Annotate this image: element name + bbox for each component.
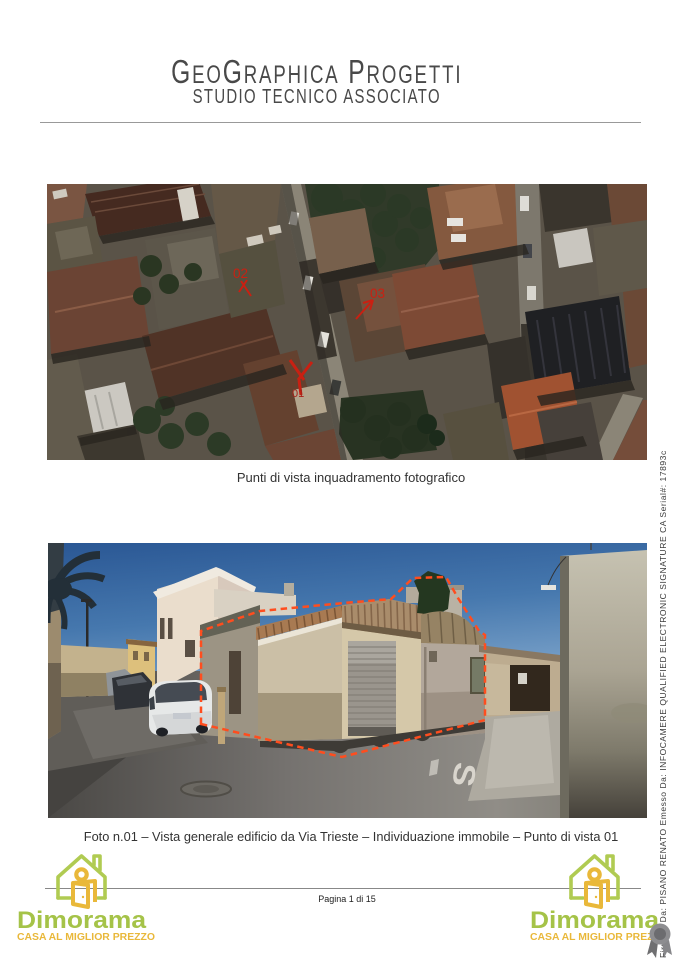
svg-text:Dimorama: Dimorama bbox=[17, 907, 147, 934]
svg-text:02: 02 bbox=[233, 266, 248, 281]
svg-text:CASA AL MIGLIOR PREZZO: CASA AL MIGLIOR PREZZO bbox=[17, 932, 155, 943]
svg-text:03: 03 bbox=[370, 286, 385, 301]
svg-text:Dimorama: Dimorama bbox=[530, 907, 660, 934]
svg-text:01: 01 bbox=[292, 388, 304, 400]
